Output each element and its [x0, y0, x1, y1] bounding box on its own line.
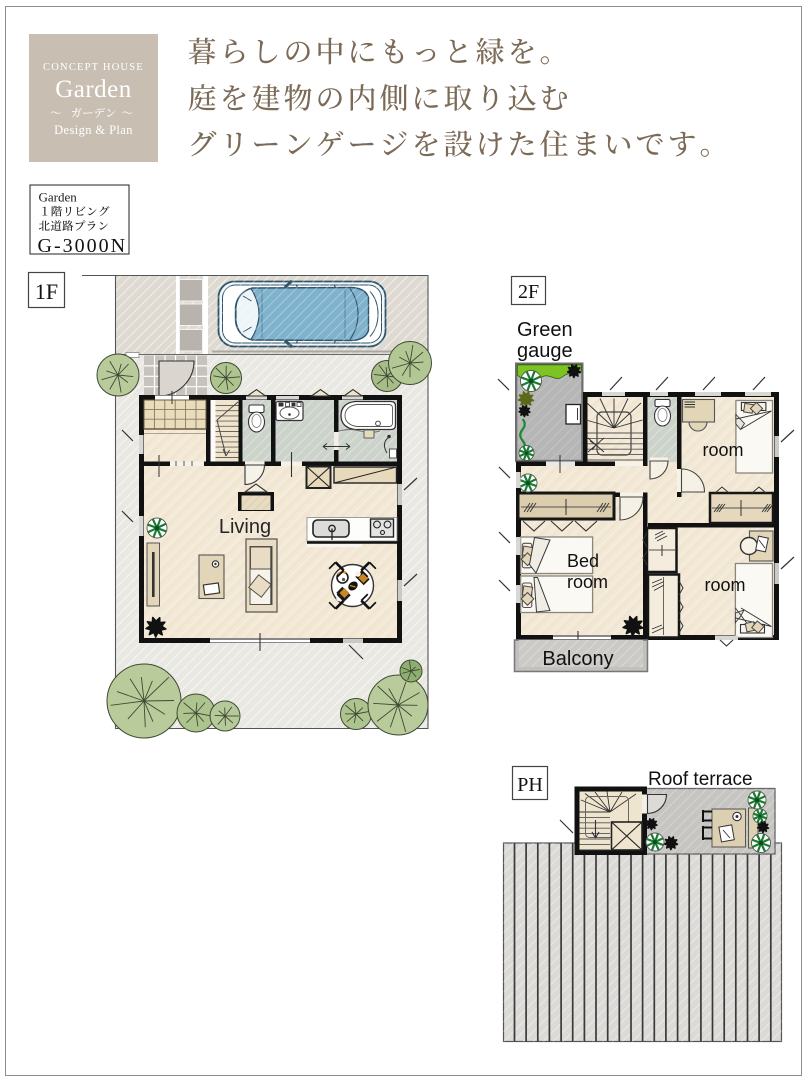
svg-text:2F: 2F: [518, 281, 539, 303]
svg-text:room: room: [567, 572, 608, 592]
svg-text:Living: Living: [219, 516, 271, 538]
svg-text:Garden: Garden: [55, 76, 132, 103]
svg-text:gauge: gauge: [517, 340, 573, 362]
svg-text:PH: PH: [517, 774, 543, 796]
svg-text:CONCEPT HOUSE: CONCEPT HOUSE: [43, 62, 144, 73]
svg-text:1F: 1F: [35, 279, 58, 304]
svg-text:G-3000N: G-3000N: [38, 235, 128, 257]
svg-text:Roof terrace: Roof terrace: [648, 769, 753, 790]
svg-text:Balcony: Balcony: [542, 648, 613, 670]
svg-text:Green: Green: [517, 319, 573, 341]
svg-text:room: room: [704, 575, 745, 595]
svg-text:Garden: Garden: [39, 190, 78, 205]
svg-text:room: room: [702, 440, 743, 460]
svg-text:Design & Plan: Design & Plan: [54, 123, 133, 137]
svg-text:Bed: Bed: [567, 551, 599, 571]
